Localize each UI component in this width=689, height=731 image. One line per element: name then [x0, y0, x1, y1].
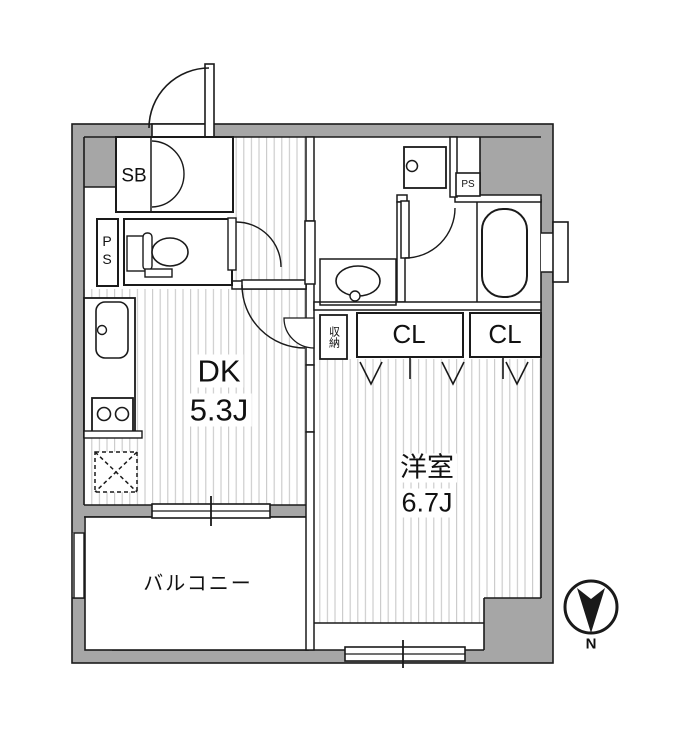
northwest-column	[84, 137, 116, 187]
floorplan-drawing	[0, 0, 689, 731]
storage-label: 収納	[328, 324, 339, 350]
dk-room-size: 5.3J	[187, 394, 252, 427]
faucet	[98, 326, 107, 335]
compass	[565, 581, 617, 633]
balcony-label: バルコニー	[143, 574, 253, 594]
burner-left	[98, 408, 111, 421]
entrance-door	[149, 64, 214, 138]
entrance-door-leaf	[205, 64, 214, 138]
bathroom-door-leaf	[401, 201, 409, 258]
compass-north-label: N	[586, 637, 597, 652]
floorplan: DK 5.3J 洋室 6.7J バルコニー SB CL CL 収納 PS PS …	[0, 0, 689, 731]
burner-right	[116, 408, 129, 421]
western-room-label: 洋室	[397, 454, 457, 483]
entrance-door-swing	[149, 68, 209, 128]
refrigerator-space	[95, 452, 137, 492]
wall-vent-gap	[541, 233, 554, 272]
pipe-space-west-label: PS	[100, 231, 114, 271]
balcony-thin-wall	[74, 533, 84, 598]
pipe-space-north-label: PS	[461, 180, 474, 190]
dk-room-label: DK	[194, 355, 243, 388]
northeast-column	[480, 137, 541, 199]
closet-1-label: CL	[392, 321, 425, 347]
toilet-door-leaf	[228, 218, 236, 270]
shoe-box-label: SB	[121, 167, 146, 186]
dk-western-sliding-door	[306, 365, 314, 432]
hallway-floor	[235, 137, 306, 281]
dk-door-leaf	[242, 280, 306, 289]
southeast-column	[484, 598, 541, 650]
western-room-size: 6.7J	[398, 489, 455, 518]
toilet-bowl	[152, 238, 188, 266]
kitchen	[84, 298, 142, 438]
washroom-door	[305, 221, 315, 284]
bathroom	[401, 201, 527, 302]
bathtub	[482, 209, 527, 297]
closet-2-label: CL	[488, 321, 521, 347]
bathroom-door-swing	[405, 208, 455, 258]
wall-vent-east	[553, 222, 568, 282]
